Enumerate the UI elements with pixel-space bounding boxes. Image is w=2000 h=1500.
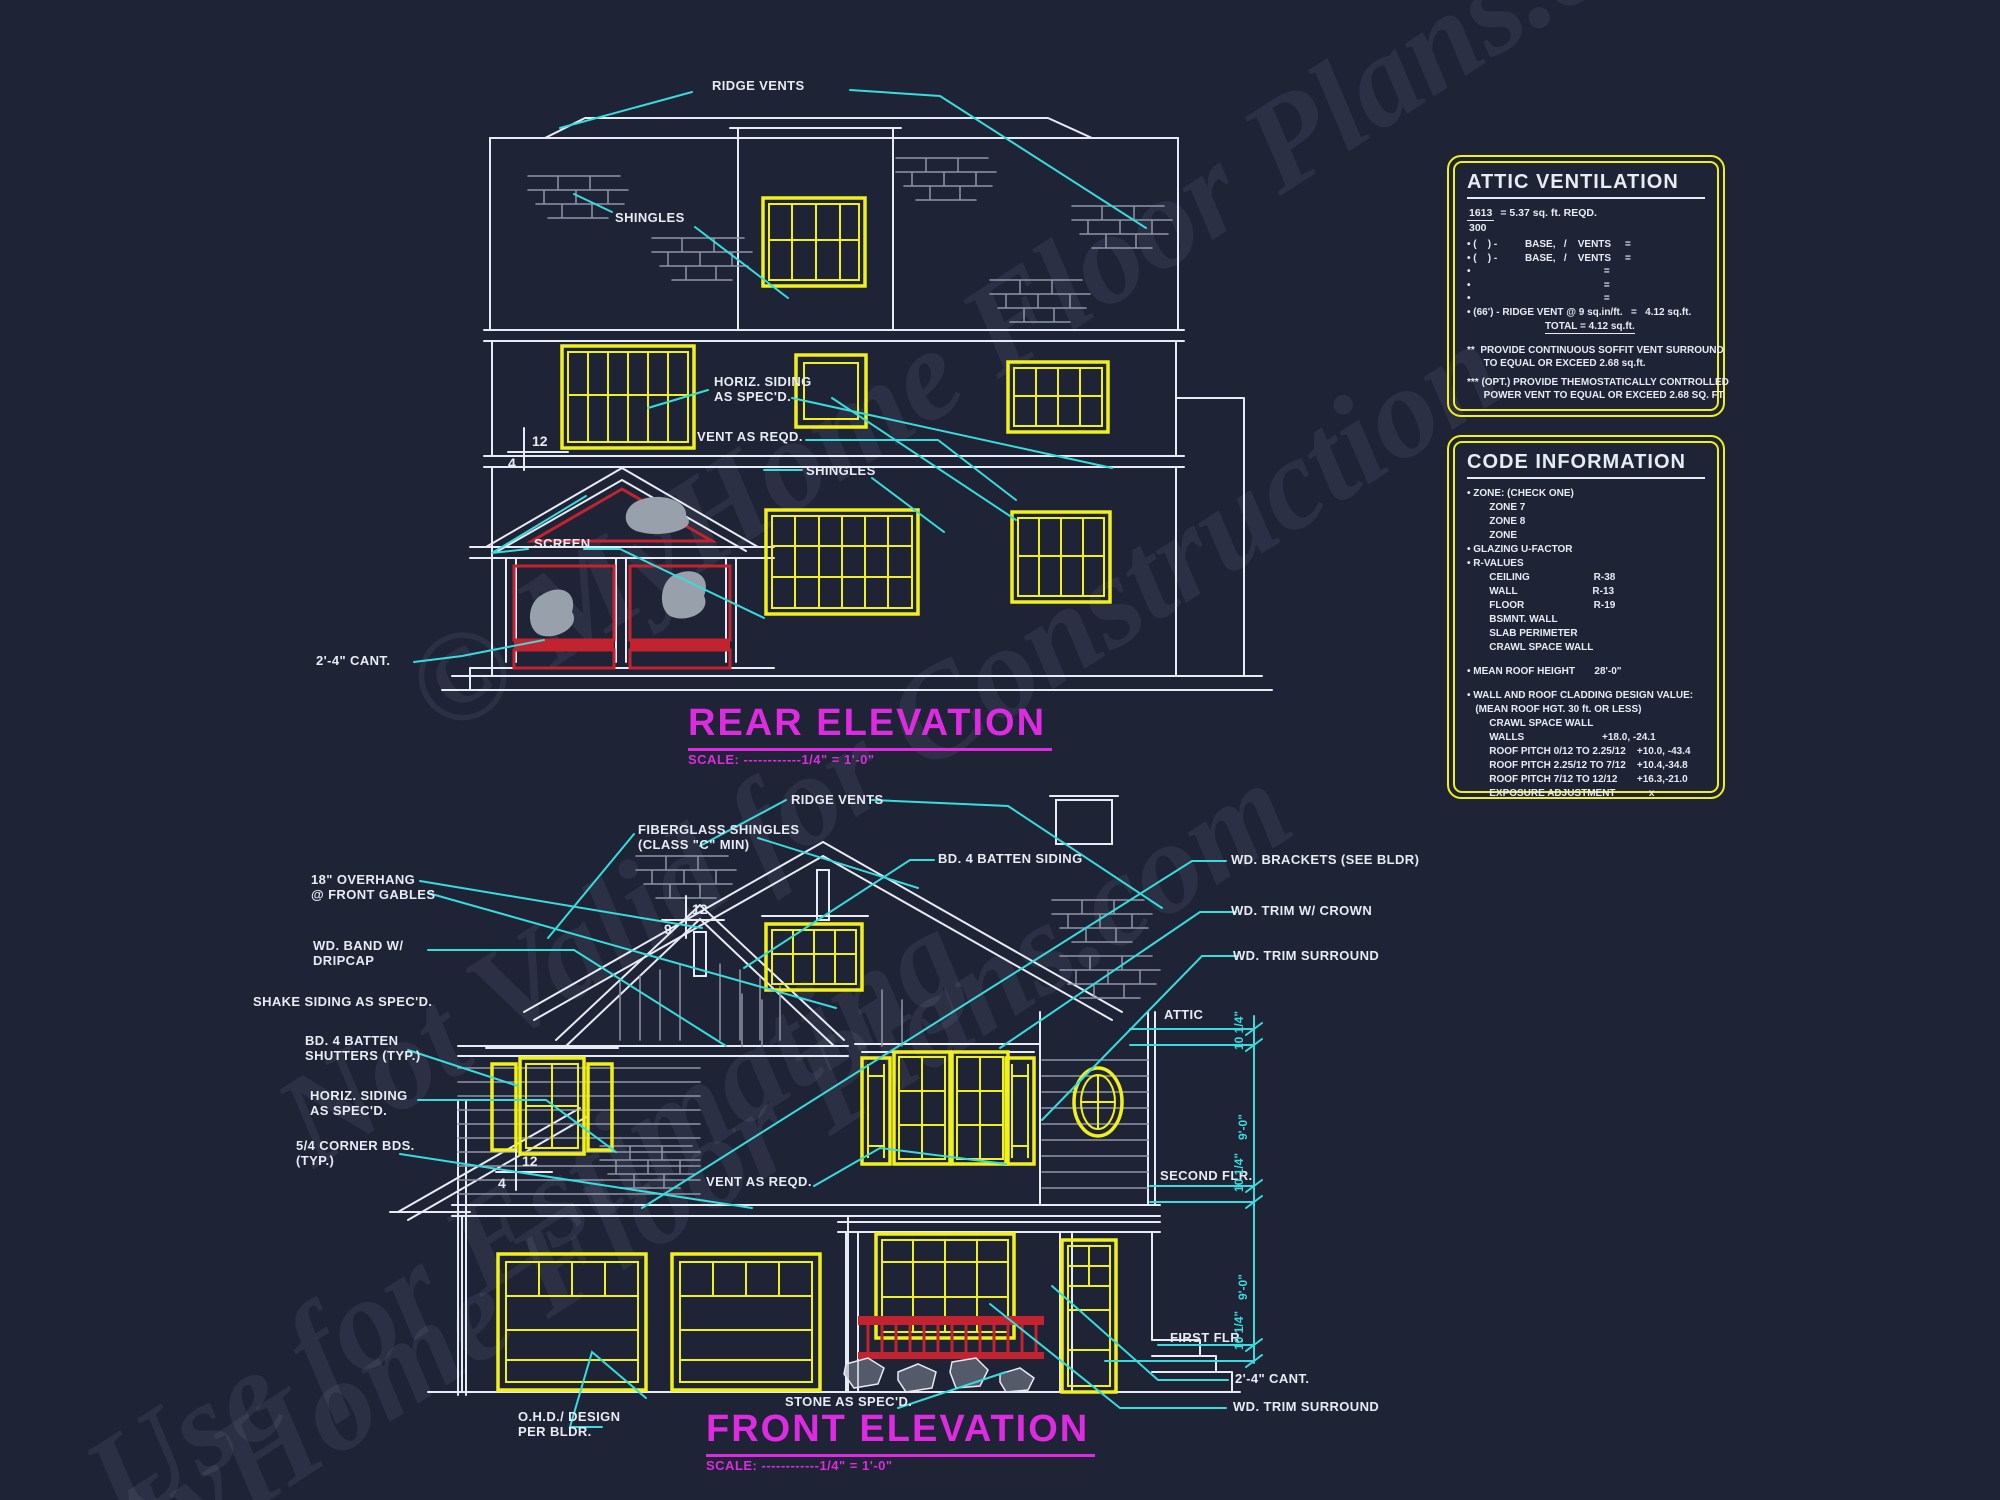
code-info-row: WALLS +18.0, -24.1 bbox=[1467, 731, 1705, 745]
label-overhang: 18" OVERHANG @ FRONT GABLES bbox=[311, 872, 435, 902]
attic-vent-required-value: = 5.37 sq. ft. REQD. bbox=[1500, 207, 1597, 219]
label-stone: STONE AS SPEC'D. bbox=[785, 1394, 912, 1409]
code-info-row: SLAB PERIMETER bbox=[1467, 627, 1705, 641]
code-info-row: EXPOSURE ADJUSTMENT x bbox=[1467, 787, 1705, 801]
svg-text:12: 12 bbox=[522, 1153, 538, 1169]
attic-ventilation-note-1: ** PROVIDE CONTINUOUS SOFFIT VENT SURROU… bbox=[1467, 344, 1705, 370]
dim-second-to-first: 9'-0" bbox=[1236, 1274, 1250, 1300]
code-info-row: ZONE bbox=[1467, 529, 1705, 543]
label-wd-brackets: WD. BRACKETS (SEE BLDR) bbox=[1231, 852, 1419, 867]
label-attic: ATTIC bbox=[1164, 1007, 1203, 1022]
svg-text:4: 4 bbox=[498, 1175, 506, 1191]
dim-first-band: 10 1/4" bbox=[1232, 1311, 1246, 1350]
blueprint-sheet: © MyHome Floor Plans.com Not Valid for C… bbox=[0, 0, 2000, 1500]
label-batten-shutters: BD. 4 BATTEN SHUTTERS (TYP.) bbox=[305, 1033, 421, 1063]
attic-ventilation-row: • ( ) - BASE, / VENTS = bbox=[1467, 252, 1705, 266]
label-wd-trim-surround-lower: WD. TRIM SURROUND bbox=[1233, 1399, 1379, 1414]
svg-text:12: 12 bbox=[692, 901, 708, 917]
rear-elevation-title: REAR ELEVATION bbox=[688, 702, 1052, 751]
code-info-row: • WALL AND ROOF CLADDING DESIGN VALUE: bbox=[1467, 689, 1705, 703]
label-cant-front: 2'-4" CANT. bbox=[1235, 1371, 1309, 1386]
label-batten-siding: BD. 4 BATTEN SIDING bbox=[938, 851, 1083, 866]
attic-ventilation-total: TOTAL = 4.12 sq.ft. bbox=[1545, 321, 1705, 332]
svg-text:12: 12 bbox=[532, 433, 548, 449]
attic-vent-required-line: 1613 300 = 5.37 sq. ft. REQD. bbox=[1467, 207, 1705, 234]
code-info-row: ROOF PITCH 7/12 TO 12/12 +16.3,-21.0 bbox=[1467, 773, 1705, 787]
label-ridge-vents-front: RIDGE VENTS bbox=[791, 792, 884, 807]
attic-ventilation-row: • = bbox=[1467, 279, 1705, 293]
label-wd-trim-surround-upper: WD. TRIM SURROUND bbox=[1233, 948, 1379, 963]
label-corner-boards: 5/4 CORNER BDS. (TYP.) bbox=[296, 1138, 415, 1168]
code-information-box: CODE INFORMATION • ZONE: (CHECK ONE) ZON… bbox=[1447, 435, 1725, 799]
label-fiberglass-shingles: FIBERGLASS SHINGLES (CLASS "C" MIN) bbox=[638, 822, 799, 852]
attic-ventilation-row: • (66') - RIDGE VENT @ 9 sq.in/ft. = 4.1… bbox=[1467, 306, 1705, 320]
front-siding-hatch bbox=[458, 856, 1160, 1194]
label-shingles-upper: SHINGLES bbox=[615, 210, 685, 225]
rear-pitch-marker: 12 4 bbox=[508, 428, 568, 471]
code-info-row: • R-VALUES bbox=[1467, 557, 1705, 571]
attic-ventilation-row: • = bbox=[1467, 292, 1705, 306]
attic-total-label: TOTAL bbox=[1545, 321, 1577, 334]
code-info-row: ZONE 7 bbox=[1467, 501, 1705, 515]
label-ridge-vents-rear: RIDGE VENTS bbox=[712, 78, 805, 93]
front-elevation-scale: SCALE: ------------1/4" = 1'-0" bbox=[706, 1458, 893, 1473]
code-info-row: CRAWL SPACE WALL bbox=[1467, 717, 1705, 731]
label-ohd: O.H.D./ DESIGN PER BLDR. bbox=[518, 1409, 620, 1439]
label-vent-rear: VENT AS REQD. bbox=[697, 429, 803, 444]
code-info-row: BSMNT. WALL bbox=[1467, 613, 1705, 627]
rear-screen-porch bbox=[514, 489, 730, 668]
code-info-row: • GLAZING U-FACTOR bbox=[1467, 543, 1705, 557]
rear-elevation-scale: SCALE: ------------1/4" = 1'-0" bbox=[688, 752, 875, 767]
code-information-title: CODE INFORMATION bbox=[1467, 451, 1705, 479]
code-info-row: CEILING R-38 bbox=[1467, 571, 1705, 585]
label-shake-siding: SHAKE SIDING AS SPEC'D. bbox=[253, 994, 432, 1009]
code-info-row: • MEAN ROOF HEIGHT 28'-0" bbox=[1467, 665, 1705, 679]
code-info-row: • ZONE: (CHECK ONE) bbox=[1467, 487, 1705, 501]
dim-second-band: 10 1/4" bbox=[1232, 1153, 1246, 1192]
label-horiz-siding-front: HORIZ. SIDING AS SPEC'D. bbox=[310, 1088, 408, 1118]
code-info-row: CRAWL SPACE WALL bbox=[1467, 641, 1705, 655]
rear-windows bbox=[562, 198, 1110, 614]
attic-ventilation-box: ATTIC VENTILATION 1613 300 = 5.37 sq. ft… bbox=[1447, 155, 1725, 417]
code-info-row: ZONE 8 bbox=[1467, 515, 1705, 529]
attic-ventilation-row: • ( ) - BASE, / VENTS = bbox=[1467, 238, 1705, 252]
attic-ventilation-note-2: *** (OPT.) PROVIDE THEMOSTATICALLY CONTR… bbox=[1467, 376, 1705, 402]
front-stone-base bbox=[844, 1358, 1034, 1392]
label-horiz-siding-rear: HORIZ. SIDING AS SPEC'D. bbox=[714, 374, 812, 404]
attic-total-value: = 4.12 sq.ft. bbox=[1577, 321, 1635, 334]
code-info-row: ROOF PITCH 0/12 TO 2.25/12 +10.0, -43.4 bbox=[1467, 745, 1705, 759]
code-info-row: ROOF PITCH 2.25/12 TO 7/12 +10.4,-34.8 bbox=[1467, 759, 1705, 773]
label-screen: SCREEN bbox=[534, 536, 591, 551]
code-info-row: FLOOR R-19 bbox=[1467, 599, 1705, 613]
dim-attic-band: 10 1/4" bbox=[1232, 1011, 1246, 1050]
attic-vent-denominator: 300 bbox=[1467, 221, 1494, 234]
attic-ventilation-title: ATTIC VENTILATION bbox=[1467, 171, 1705, 199]
label-wd-trim-crown: WD. TRIM W/ CROWN bbox=[1231, 903, 1372, 918]
attic-ventilation-row: • = bbox=[1467, 265, 1705, 279]
label-cant-rear: 2'-4" CANT. bbox=[316, 653, 390, 668]
label-wd-band-dripcap: WD. BAND W/ DRIPCAP bbox=[313, 938, 403, 968]
front-elevation-title: FRONT ELEVATION bbox=[706, 1408, 1095, 1457]
label-vent-front: VENT AS REQD. bbox=[706, 1174, 812, 1189]
svg-text:4: 4 bbox=[508, 455, 516, 471]
label-shingles-lower: SHINGLES bbox=[806, 463, 876, 478]
code-info-row: WALL R-13 bbox=[1467, 585, 1705, 599]
dim-attic-to-second: 9'-0" bbox=[1236, 1114, 1250, 1140]
attic-vent-numerator: 1613 bbox=[1467, 207, 1494, 221]
code-info-row: (MEAN ROOF HGT. 30 ft. OR LESS) bbox=[1467, 703, 1705, 717]
